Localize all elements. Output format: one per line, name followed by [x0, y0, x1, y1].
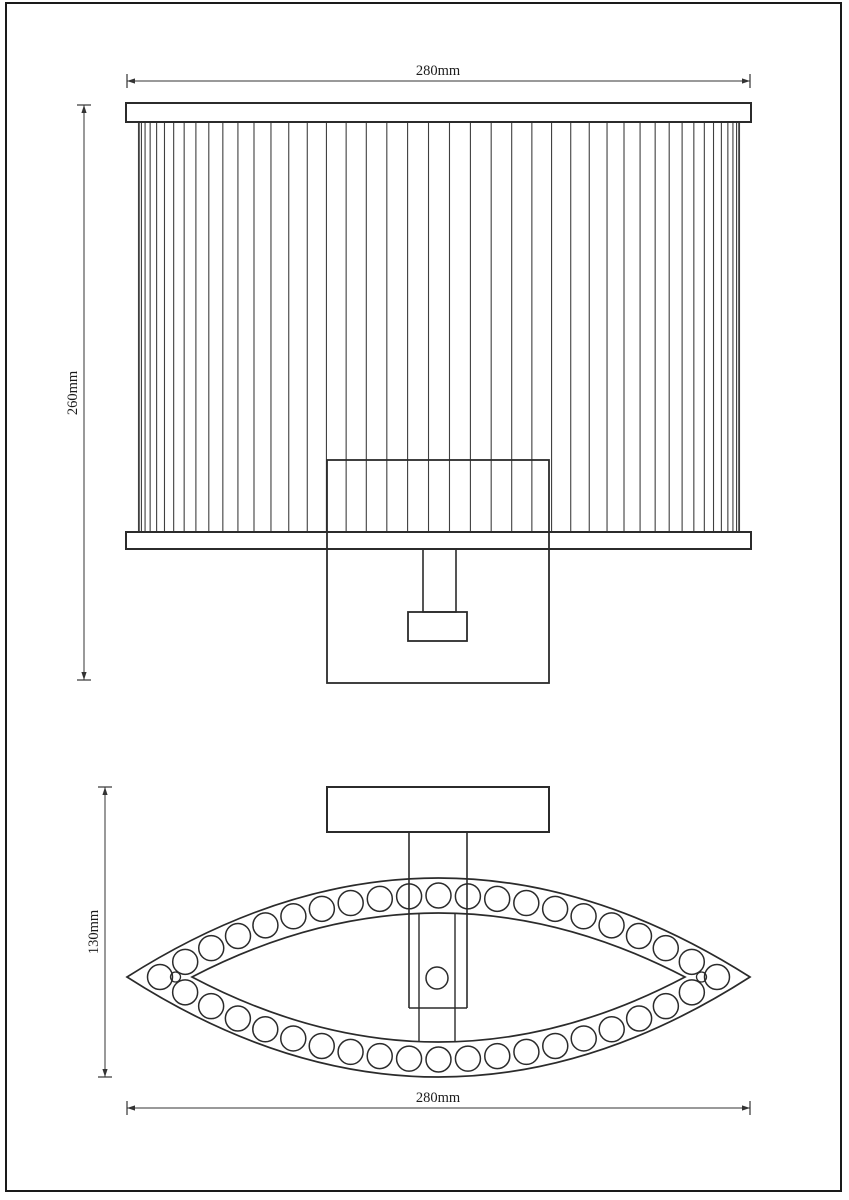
bead-circle [543, 1033, 568, 1058]
lamp-stem-front [423, 549, 456, 612]
bead-circle [514, 1039, 539, 1064]
bead-circle [514, 891, 539, 916]
bead-circle [485, 886, 510, 911]
shade-bottom-ring [126, 532, 751, 549]
bead-circle [426, 883, 451, 908]
dim-label-top-width: 280mm [416, 1090, 461, 1106]
bead-circle [571, 1026, 596, 1051]
pleated-shade [139, 122, 740, 532]
bead-circle [653, 994, 678, 1019]
bead-circle [679, 949, 704, 974]
front-view [126, 103, 751, 683]
bead-circle [253, 913, 278, 938]
bead-circle [199, 936, 224, 961]
bead-circle [599, 1017, 624, 1042]
shade-top-ring [126, 103, 751, 122]
bead-circle [397, 1046, 422, 1071]
bead-circle [226, 923, 251, 948]
spec-sheet: 280mm 260mm 130mm 280mm [0, 0, 849, 1200]
bead-circle [148, 965, 173, 990]
bead-circle [627, 1006, 652, 1031]
wall-plate-top [327, 787, 549, 832]
bead-circle [281, 904, 306, 929]
dimension-arrow [127, 78, 135, 83]
bead-circle [455, 1046, 480, 1071]
lens-inner-edge [192, 913, 685, 1042]
dimension-arrow [102, 787, 107, 795]
dim-label-front-height: 260mm [65, 370, 81, 415]
bead-circle [338, 891, 363, 916]
bead-circle [599, 913, 624, 938]
bead-circle [543, 896, 568, 921]
dimension-arrow [81, 672, 86, 680]
dimension-arrow [742, 1105, 750, 1110]
bead-circle [253, 1017, 278, 1042]
crystal-beads [148, 883, 730, 1072]
socket-box-front [408, 612, 467, 641]
mount-and-arm [327, 787, 549, 1042]
bead-circle [679, 980, 704, 1005]
bead-circle [173, 980, 198, 1005]
bead-circle [367, 1044, 392, 1069]
bead-circle [426, 1047, 451, 1072]
bead-circle [309, 1033, 334, 1058]
bead-circle [367, 886, 392, 911]
bead-circle [455, 884, 480, 909]
pivot-hole [426, 967, 448, 989]
bead-circle [485, 1044, 510, 1069]
dimension-arrow [81, 105, 86, 113]
dim-label-front-width: 280mm [416, 63, 461, 79]
technical-drawing: 280mm 260mm 130mm 280mm [0, 0, 849, 1200]
bead-circle [309, 896, 334, 921]
bead-circle [626, 923, 651, 948]
dim-label-top-depth: 130mm [86, 909, 102, 954]
bead-circle [705, 965, 730, 990]
bead-circle [225, 1006, 250, 1031]
bead-circle [653, 936, 678, 961]
dimension-arrow [102, 1069, 107, 1077]
dimension-arrow [742, 78, 750, 83]
bead-circle [338, 1039, 363, 1064]
bead-circle [199, 994, 224, 1019]
dimension-arrow [127, 1105, 135, 1110]
bead-circle [281, 1026, 306, 1051]
wall-plate-front [327, 460, 549, 683]
bead-circle [571, 904, 596, 929]
front-view-outlines [126, 103, 751, 683]
top-view [127, 787, 750, 1077]
bead-circle [173, 949, 198, 974]
